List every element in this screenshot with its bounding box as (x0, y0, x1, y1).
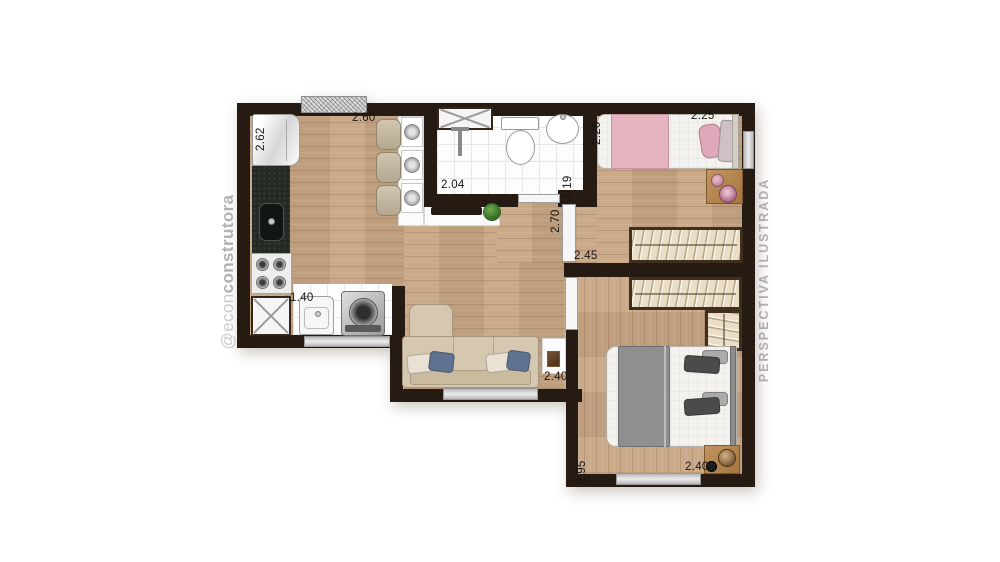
bedroom2-closet-top (629, 277, 742, 310)
washbasin-faucet (560, 114, 566, 120)
bedroom2-closet-side (705, 310, 742, 351)
burner-icon (273, 276, 286, 289)
table-lamp-icon (719, 450, 735, 466)
wardrobe-rod (635, 244, 737, 246)
closet-rod (723, 314, 725, 347)
dimension-label: 2.95 (577, 448, 589, 484)
burner-icon (273, 258, 286, 271)
laundry-window (304, 336, 390, 347)
dimension-label: 2.20 (592, 109, 604, 145)
sofa-pillow (428, 351, 455, 374)
side-table-decor (547, 351, 560, 367)
place-setting (401, 150, 423, 180)
utility-shaft (251, 296, 291, 336)
bed2-pillow (683, 397, 720, 416)
cross-icon (439, 109, 491, 128)
bedroom1-window (743, 131, 754, 169)
wall-left (237, 103, 250, 348)
dimension-label: 1.40 (290, 293, 314, 305)
living-room-window (443, 388, 538, 400)
toilet-tank (501, 117, 539, 130)
cross-icon (253, 298, 289, 334)
bed1-blanket (611, 114, 669, 169)
place-setting (401, 183, 423, 213)
plate-icon (404, 124, 420, 140)
breakfast-stool (376, 152, 401, 183)
dimension-label: 1.19 (563, 167, 575, 199)
counter-bench (431, 207, 482, 215)
sofa-pillow (506, 349, 532, 372)
sofa-front-edge (410, 370, 531, 385)
shower-column (458, 127, 462, 156)
wall-bathroom-left (424, 103, 437, 207)
washing-machine (341, 291, 385, 336)
bed2-blanket (618, 346, 670, 447)
sofa-chaise (409, 304, 453, 340)
bed2-blanket-fold (664, 346, 666, 447)
washer-door-icon (349, 298, 378, 327)
wall-bathroom-bottom (424, 194, 518, 207)
breakfast-stool (376, 185, 401, 216)
bed1-headboard (732, 114, 739, 169)
place-setting (401, 117, 423, 147)
plant-icon (484, 204, 500, 220)
breakfast-stool (376, 119, 401, 150)
wall-bedroom2-top (564, 263, 755, 277)
desk-accessory (712, 175, 723, 186)
washer-panel (345, 325, 381, 332)
plate-icon (404, 190, 420, 206)
dimension-label: 2.45 (574, 251, 598, 263)
cooktop (251, 253, 292, 294)
dimension-label: 2.40 (544, 372, 568, 384)
bedroom2-window (616, 473, 701, 485)
bed2-pillow (683, 355, 720, 374)
dimension-label: 2.25 (691, 111, 715, 123)
plate-icon (404, 157, 420, 173)
entry-door (301, 96, 367, 113)
desk-accessory (720, 186, 736, 202)
dimension-label: 2.60 (352, 113, 376, 125)
dimension-label: 2.70 (551, 197, 563, 233)
dimension-label: 2.40 (685, 462, 709, 474)
dimension-label: 2.62 (256, 115, 268, 151)
bedroom2-door-leaf (565, 277, 578, 330)
closet-rod (635, 293, 736, 295)
floor-plan: 2.62 2.60 2.04 1.19 2.20 2.25 2.70 2.45 … (0, 0, 1000, 562)
laundry-faucet (315, 311, 321, 317)
toilet (506, 130, 535, 165)
burner-icon (256, 276, 269, 289)
dimension-label: 2.04 (441, 180, 465, 192)
bed2-headboard (730, 346, 736, 447)
burner-icon (256, 258, 269, 271)
floor-plan-canvas: @econconstrutora PERSPECTIVA ILUSTRADA (0, 0, 1000, 562)
bedroom1-wardrobe (629, 227, 743, 263)
kitchen-faucet (268, 218, 275, 225)
